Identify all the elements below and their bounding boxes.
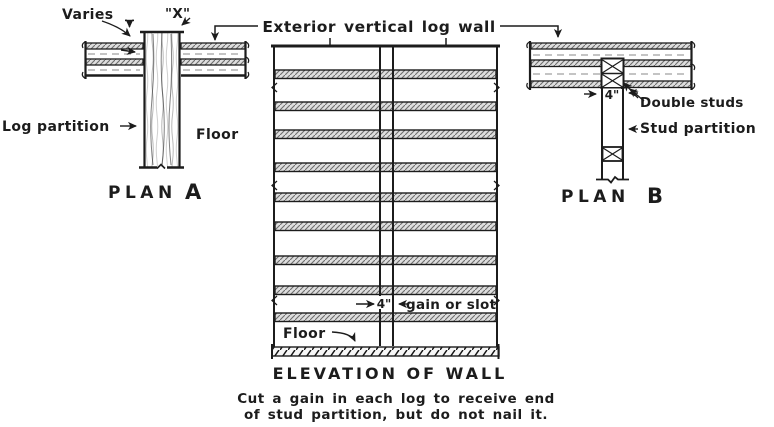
plan-b-title-word: PLAN xyxy=(561,187,630,207)
plan-a: Varies "X" Log partition Floor PLAN A xyxy=(2,6,249,204)
plan-b-title-letter: B xyxy=(647,184,663,208)
caption-line-2: of stud partition, but do not nail it. xyxy=(244,407,548,423)
elevation: 4" gain or slot Floor ELEVATION OF WALL … xyxy=(237,45,555,423)
plan-a-log-partition xyxy=(139,32,184,169)
partition-break-mark xyxy=(596,177,629,183)
construction-diagram: Exterior vertical log wall xyxy=(0,0,774,427)
elevation-title: ELEVATION OF WALL xyxy=(273,364,508,383)
plan-b: 4" Double studs Stud partition PLAN B xyxy=(527,41,756,208)
caption-line-1: Cut a gain in each log to receive end xyxy=(237,391,555,407)
x-dim-label: "X" xyxy=(165,6,190,22)
leader-to-plan-b-wall xyxy=(500,26,558,37)
plan-a-title-word: PLAN xyxy=(108,183,177,203)
gain-dim-label: 4" xyxy=(377,297,392,311)
elevation-floor-label: Floor xyxy=(283,326,326,342)
plan-a-title: PLAN A xyxy=(108,180,202,204)
exterior-wall-label: Exterior vertical log wall xyxy=(262,18,495,36)
plan-b-callouts: Double studs Stud partition xyxy=(624,83,756,137)
plan-a-title-letter: A xyxy=(185,180,202,204)
diagram-canvas: Exterior vertical log wall xyxy=(0,0,774,427)
plan-a-floor-label: Floor xyxy=(196,127,239,143)
plan-b-dim-label: 4" xyxy=(605,88,620,102)
plan-b-stud-partition xyxy=(596,59,629,183)
varies-wall-arrow xyxy=(121,50,135,52)
gain-or-slot-label: gain or slot xyxy=(406,297,497,313)
stud-partition-label: Stud partition xyxy=(640,121,756,137)
plan-b-title: PLAN B xyxy=(561,184,663,208)
double-studs-label: Double studs xyxy=(640,95,744,111)
varies-leader-arrow xyxy=(102,21,130,36)
varies-label: Varies xyxy=(62,7,113,23)
floor-hatch-strip xyxy=(272,347,499,356)
gain-dimension: 4" gain or slot xyxy=(356,296,497,313)
log-partition-label: Log partition xyxy=(2,119,110,135)
leader-to-plan-a-wall xyxy=(215,26,258,40)
